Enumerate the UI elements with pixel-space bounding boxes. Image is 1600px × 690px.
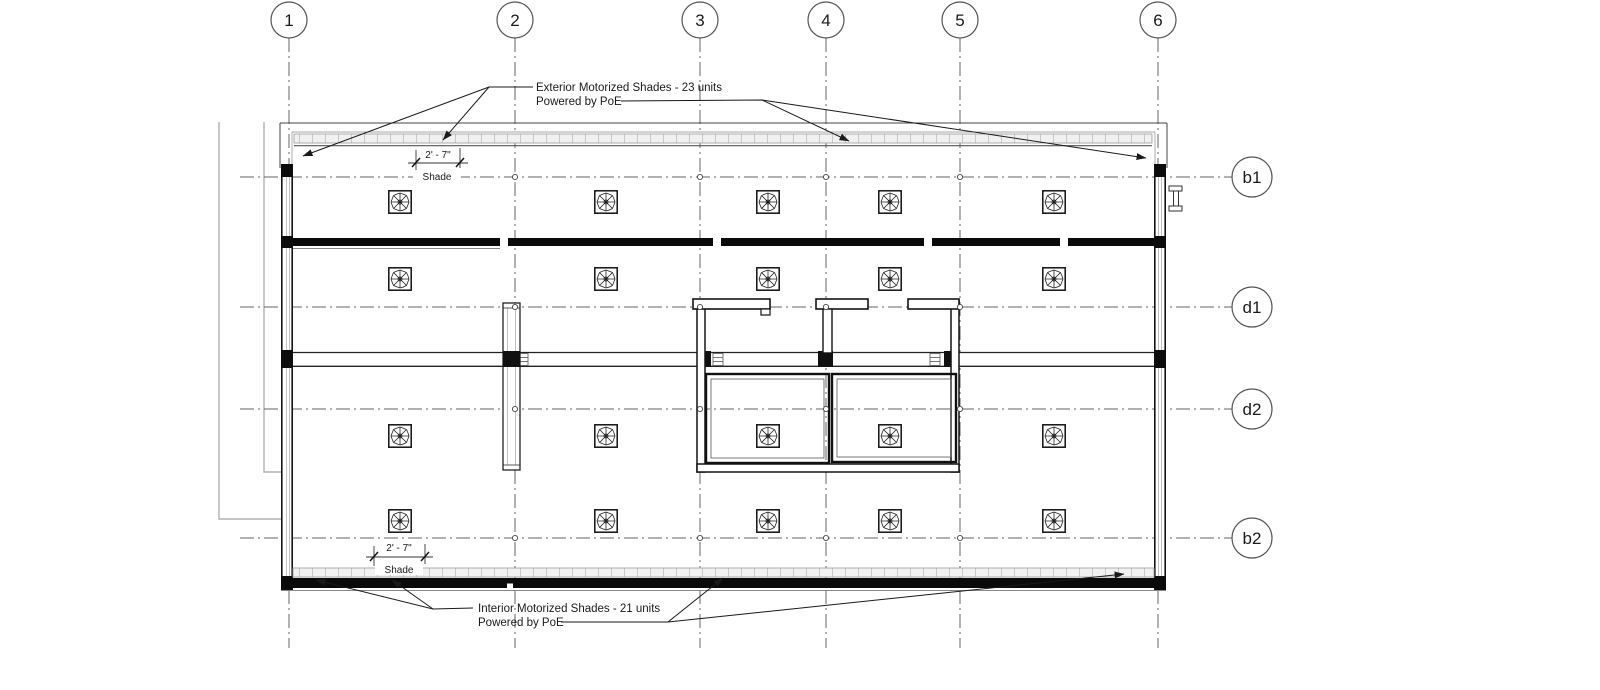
interior-shades-text-line2: Powered by PoE — [478, 617, 564, 629]
dimension-bottom: 2' - 7" Shade — [366, 543, 433, 576]
vertical-interior-wall — [503, 303, 520, 470]
right-exterior-wall — [1154, 164, 1182, 590]
floor-plan-page: 1 2 3 4 5 6 b1 d1 d2 b2 E — [0, 0, 1600, 690]
exterior-shades-annotation: Exterior Motorized Shades - 23 units Pow… — [536, 82, 722, 108]
dimension-bottom-value: 2' - 7" — [386, 543, 412, 554]
grid-bubble-d2: d2 — [1232, 389, 1272, 429]
grid-bubble-4: 4 — [808, 2, 844, 38]
grid-bubble-2-label: 2 — [510, 11, 519, 30]
grid-bubble-2: 2 — [497, 2, 533, 38]
grid-bubble-3-label: 3 — [695, 11, 704, 30]
grid-bubble-d1-label: d1 — [1243, 298, 1262, 317]
grid-bubble-6: 6 — [1140, 2, 1176, 38]
grid-bubble-3: 3 — [682, 2, 718, 38]
grid-bubble-b1-label: b1 — [1243, 168, 1262, 187]
core-wall-bottom — [697, 464, 959, 472]
exterior-shades-text-line1: Exterior Motorized Shades - 23 units — [536, 82, 722, 94]
grid-bubble-1-label: 1 — [284, 11, 293, 30]
room-right — [832, 374, 956, 462]
shade-band-top — [294, 134, 1152, 143]
exterior-shades-text-line2: Powered by PoE — [536, 96, 622, 108]
column-grid-lines — [289, 38, 1158, 648]
core-rooms — [706, 374, 956, 463]
dimension-top: 2' - 7" Shade — [408, 148, 468, 183]
interior-wall-band — [293, 238, 1154, 249]
core-bar-3 — [908, 299, 959, 309]
core-bar-1 — [693, 299, 770, 309]
grid-bubble-b1: b1 — [1232, 157, 1272, 197]
dimension-top-value: 2' - 7" — [425, 150, 451, 161]
interior-shades-text-line1: Interior Motorized Shades - 21 units — [478, 603, 660, 615]
wall-bracket-symbol — [1169, 186, 1182, 211]
floor-plan-drawing: 1 2 3 4 5 6 b1 d1 d2 b2 E — [0, 0, 1600, 690]
dimension-top-label: Shade — [423, 172, 452, 183]
row-grid-bubbles: b1 d1 d2 b2 — [1232, 157, 1272, 558]
grid-bubble-b2: b2 — [1232, 518, 1272, 558]
grid-bubble-b2-label: b2 — [1243, 529, 1262, 548]
grid-bubble-5: 5 — [942, 2, 978, 38]
room-left — [706, 374, 829, 463]
mid-wall-band — [293, 351, 1154, 367]
left-exterior-wall — [281, 164, 293, 590]
grid-bubble-6-label: 6 — [1153, 11, 1162, 30]
reference-lines-left — [219, 122, 290, 519]
column-grid-bubbles: 1 2 3 4 5 6 — [271, 2, 1176, 38]
grid-bubble-4-label: 4 — [821, 11, 830, 30]
core-wall-left — [697, 300, 705, 472]
interior-shades-annotation: Interior Motorized Shades - 21 units Pow… — [478, 603, 660, 629]
grid-bubble-5-label: 5 — [955, 11, 964, 30]
grid-bubble-d1: d1 — [1232, 287, 1272, 327]
grid-bubble-d2-label: d2 — [1243, 400, 1262, 419]
dimension-bottom-label: Shade — [385, 565, 414, 576]
grid-bubble-1: 1 — [271, 2, 307, 38]
